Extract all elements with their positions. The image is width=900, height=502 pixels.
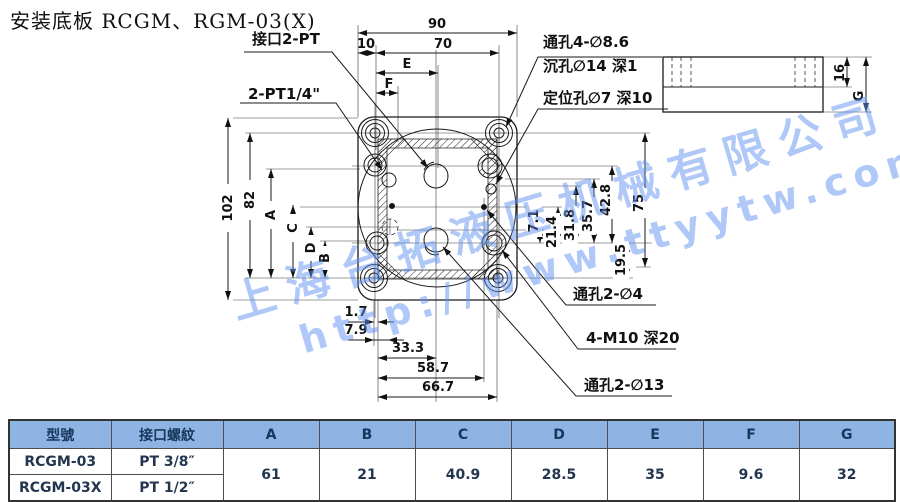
header-g: G bbox=[799, 420, 895, 449]
dim-F: F bbox=[385, 77, 394, 92]
header-c: C bbox=[415, 420, 511, 449]
dim-C: C bbox=[286, 223, 301, 233]
label-port-quarter: 2-PT1/4" bbox=[248, 85, 320, 103]
small-hole-left bbox=[390, 204, 395, 209]
dims-right: 7.1 21.4 31.8 35.7 42.8 19.5 75 bbox=[526, 133, 647, 279]
header-model: 型號 bbox=[9, 420, 111, 449]
label-counterbore: 沉孔∅14 深1 bbox=[543, 57, 637, 75]
cell-model-1: RCGM-03 bbox=[9, 449, 111, 475]
technical-drawing: 16 G 90 10 70 E F 102 82 A C D B 7.1 21.… bbox=[0, 0, 900, 415]
side-view: 16 G bbox=[663, 57, 872, 112]
dim-31-8: 31.8 bbox=[563, 209, 578, 241]
dim-16: 16 bbox=[833, 64, 848, 82]
cell-value-e: 35 bbox=[607, 449, 703, 502]
dims-top: 90 10 70 E F bbox=[357, 17, 517, 93]
cell-thread-1: PT 3/8″ bbox=[111, 449, 223, 475]
dims-left: 102 82 A C D B bbox=[220, 118, 333, 300]
dim-19-5: 19.5 bbox=[614, 244, 629, 276]
dim-82: 82 bbox=[243, 191, 258, 209]
table-row: RCGM-03 PT 3/8″ 61 21 40.9 28.5 35 9.6 3… bbox=[9, 449, 895, 475]
small-hole-right bbox=[482, 205, 487, 210]
header-d: D bbox=[511, 420, 607, 449]
dim-21-4: 21.4 bbox=[545, 216, 560, 248]
dim-G: G bbox=[852, 91, 867, 102]
dims-bottom: 1.7 7.9 33.3 58.7 66.7 bbox=[344, 305, 497, 397]
cell-value-f: 9.6 bbox=[703, 449, 799, 502]
label-through-2-13: 通孔2-∅13 bbox=[584, 376, 664, 394]
cell-value-d: 28.5 bbox=[511, 449, 607, 502]
dim-B: B bbox=[318, 253, 333, 263]
cell-model-2: RCGM-03X bbox=[9, 475, 111, 502]
cell-value-g: 32 bbox=[799, 449, 895, 502]
header-f: F bbox=[703, 420, 799, 449]
dim-35-7: 35.7 bbox=[581, 200, 596, 232]
cell-thread-2: PT 1/2″ bbox=[111, 475, 223, 502]
label-tapped-m10: 4-M10 深20 bbox=[586, 329, 680, 347]
dim-90: 90 bbox=[428, 17, 446, 32]
cell-value-a: 61 bbox=[223, 449, 319, 502]
label-port-main: 接口2-PT bbox=[252, 30, 321, 48]
dim-7-9: 7.9 bbox=[344, 323, 367, 338]
dim-66-7: 66.7 bbox=[422, 380, 454, 395]
dim-75: 75 bbox=[632, 194, 647, 212]
cell-value-b: 21 bbox=[319, 449, 415, 502]
dim-70: 70 bbox=[434, 37, 452, 52]
spec-table: 型號 接口螺紋 A B C D E F G RCGM-03 PT 3/8″ 61… bbox=[8, 419, 896, 502]
svg-text:G: G bbox=[852, 91, 867, 102]
header-e: E bbox=[607, 420, 703, 449]
table-header-row: 型號 接口螺紋 A B C D E F G bbox=[9, 420, 895, 449]
dim-33-3: 33.3 bbox=[392, 341, 424, 356]
label-through-2-4: 通孔2-∅4 bbox=[573, 285, 643, 303]
label-through-4-8-6: 通孔4-∅8.6 bbox=[543, 33, 629, 51]
dim-58-7: 58.7 bbox=[417, 361, 449, 376]
header-a: A bbox=[223, 420, 319, 449]
cell-value-c: 40.9 bbox=[415, 449, 511, 502]
dim-E: E bbox=[403, 57, 412, 72]
dim-1-7: 1.7 bbox=[344, 305, 367, 320]
dim-42-8: 42.8 bbox=[599, 184, 614, 216]
dim-D: D bbox=[304, 242, 319, 253]
label-locating-hole: 定位孔∅7 深10 bbox=[543, 89, 652, 107]
dim-10: 10 bbox=[357, 37, 375, 52]
svg-text:16: 16 bbox=[833, 64, 848, 82]
dim-102: 102 bbox=[221, 194, 236, 221]
dim-7-1: 7.1 bbox=[527, 209, 542, 232]
header-thread: 接口螺紋 bbox=[111, 420, 223, 449]
dim-A: A bbox=[264, 210, 279, 220]
header-b: B bbox=[319, 420, 415, 449]
